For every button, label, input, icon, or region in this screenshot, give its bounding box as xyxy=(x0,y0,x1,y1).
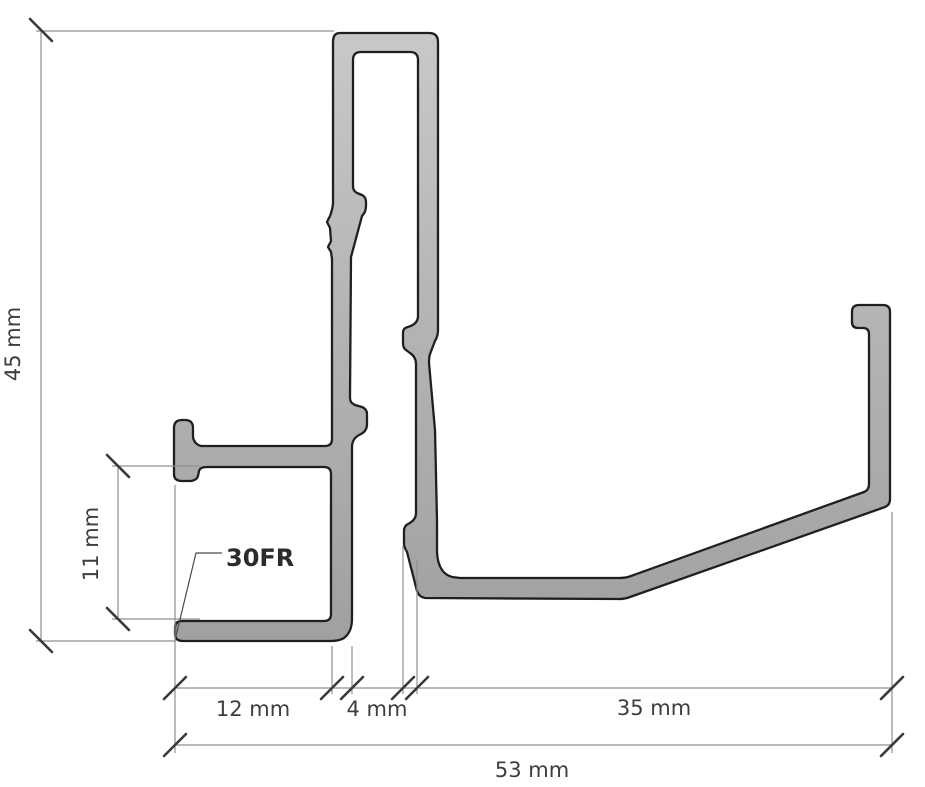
tick-marks xyxy=(30,19,903,756)
dimension-lines xyxy=(41,30,892,745)
dim-label-base-width: 35 mm xyxy=(617,696,691,720)
dim-label-overall-height: 45 mm xyxy=(1,307,25,381)
technical-drawing-canvas: 45 mm 11 mm 12 mm 4 mm 35 mm 53 mm 30FR xyxy=(0,0,925,787)
dim-label-pocket-height: 11 mm xyxy=(79,507,103,581)
dim-label-overall-width: 53 mm xyxy=(495,758,569,782)
dim-label-gap-width: 4 mm xyxy=(347,697,408,721)
profile-code-label: 30FR xyxy=(226,544,294,572)
profile-drawing: 45 mm 11 mm 12 mm 4 mm 35 mm 53 mm 30FR xyxy=(0,0,925,787)
dim-label-pocket-width: 12 mm xyxy=(216,697,290,721)
extension-lines xyxy=(36,31,892,753)
